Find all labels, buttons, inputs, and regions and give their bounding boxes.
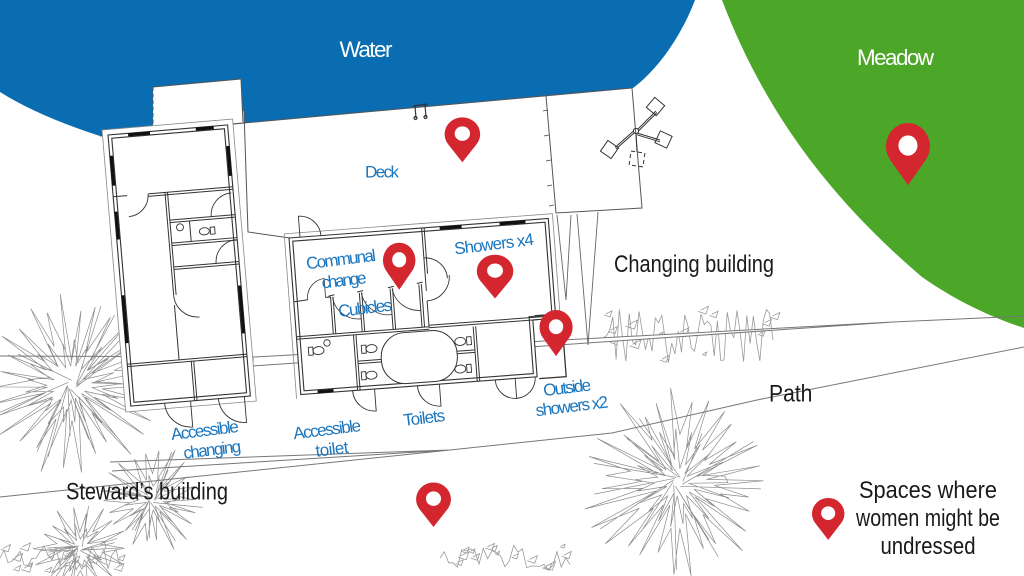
svg-text:toilet: toilet: [314, 438, 349, 461]
svg-text:undressed: undressed: [880, 532, 975, 559]
svg-text:Deck: Deck: [365, 163, 400, 182]
svg-text:Accessible: Accessible: [292, 416, 362, 443]
svg-text:women might be: women might be: [855, 504, 1000, 531]
svg-text:Meadow: Meadow: [857, 45, 935, 70]
svg-text:Spaces where: Spaces where: [859, 476, 997, 503]
svg-text:Water: Water: [340, 37, 394, 62]
svg-text:Path: Path: [769, 380, 812, 407]
svg-text:Toilets: Toilets: [402, 406, 446, 430]
svg-text:Steward’s building: Steward’s building: [66, 478, 228, 505]
svg-text:Changing building: Changing building: [614, 250, 774, 277]
